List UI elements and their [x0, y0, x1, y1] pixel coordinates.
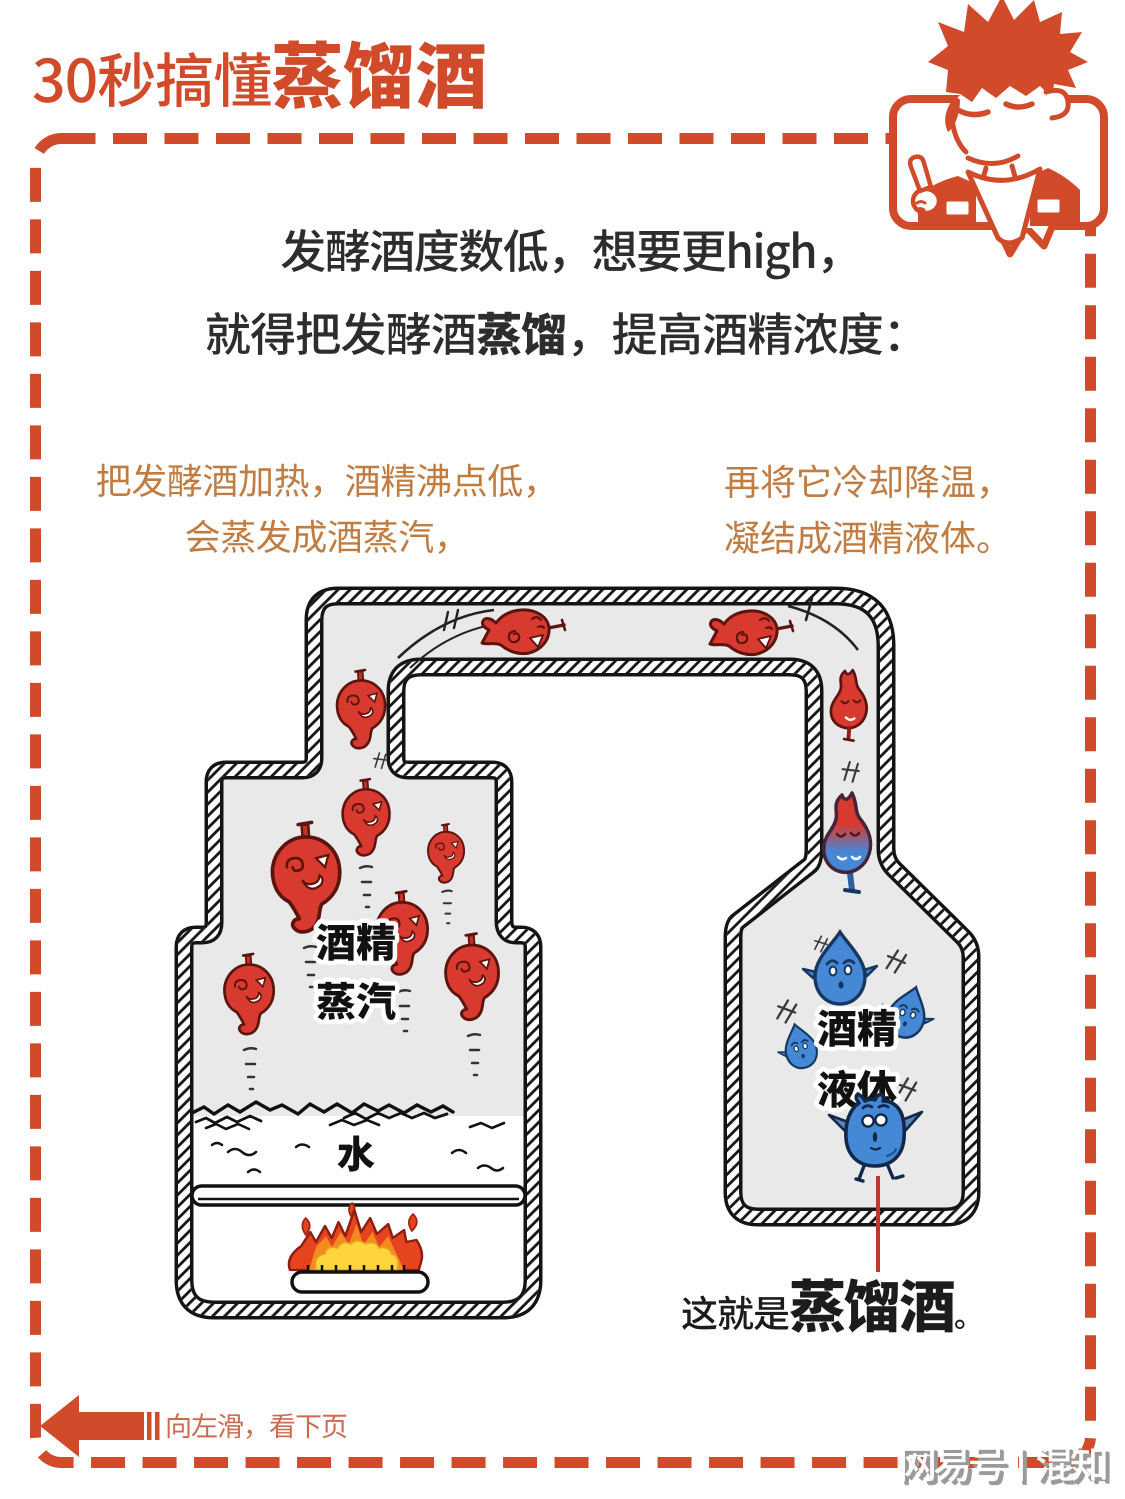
- svg-text:酒精: 酒精: [817, 997, 897, 1055]
- svg-text:水: 水: [337, 1124, 375, 1179]
- svg-text:蒸汽: 蒸汽: [316, 970, 396, 1028]
- svg-text:酒精: 酒精: [316, 911, 396, 969]
